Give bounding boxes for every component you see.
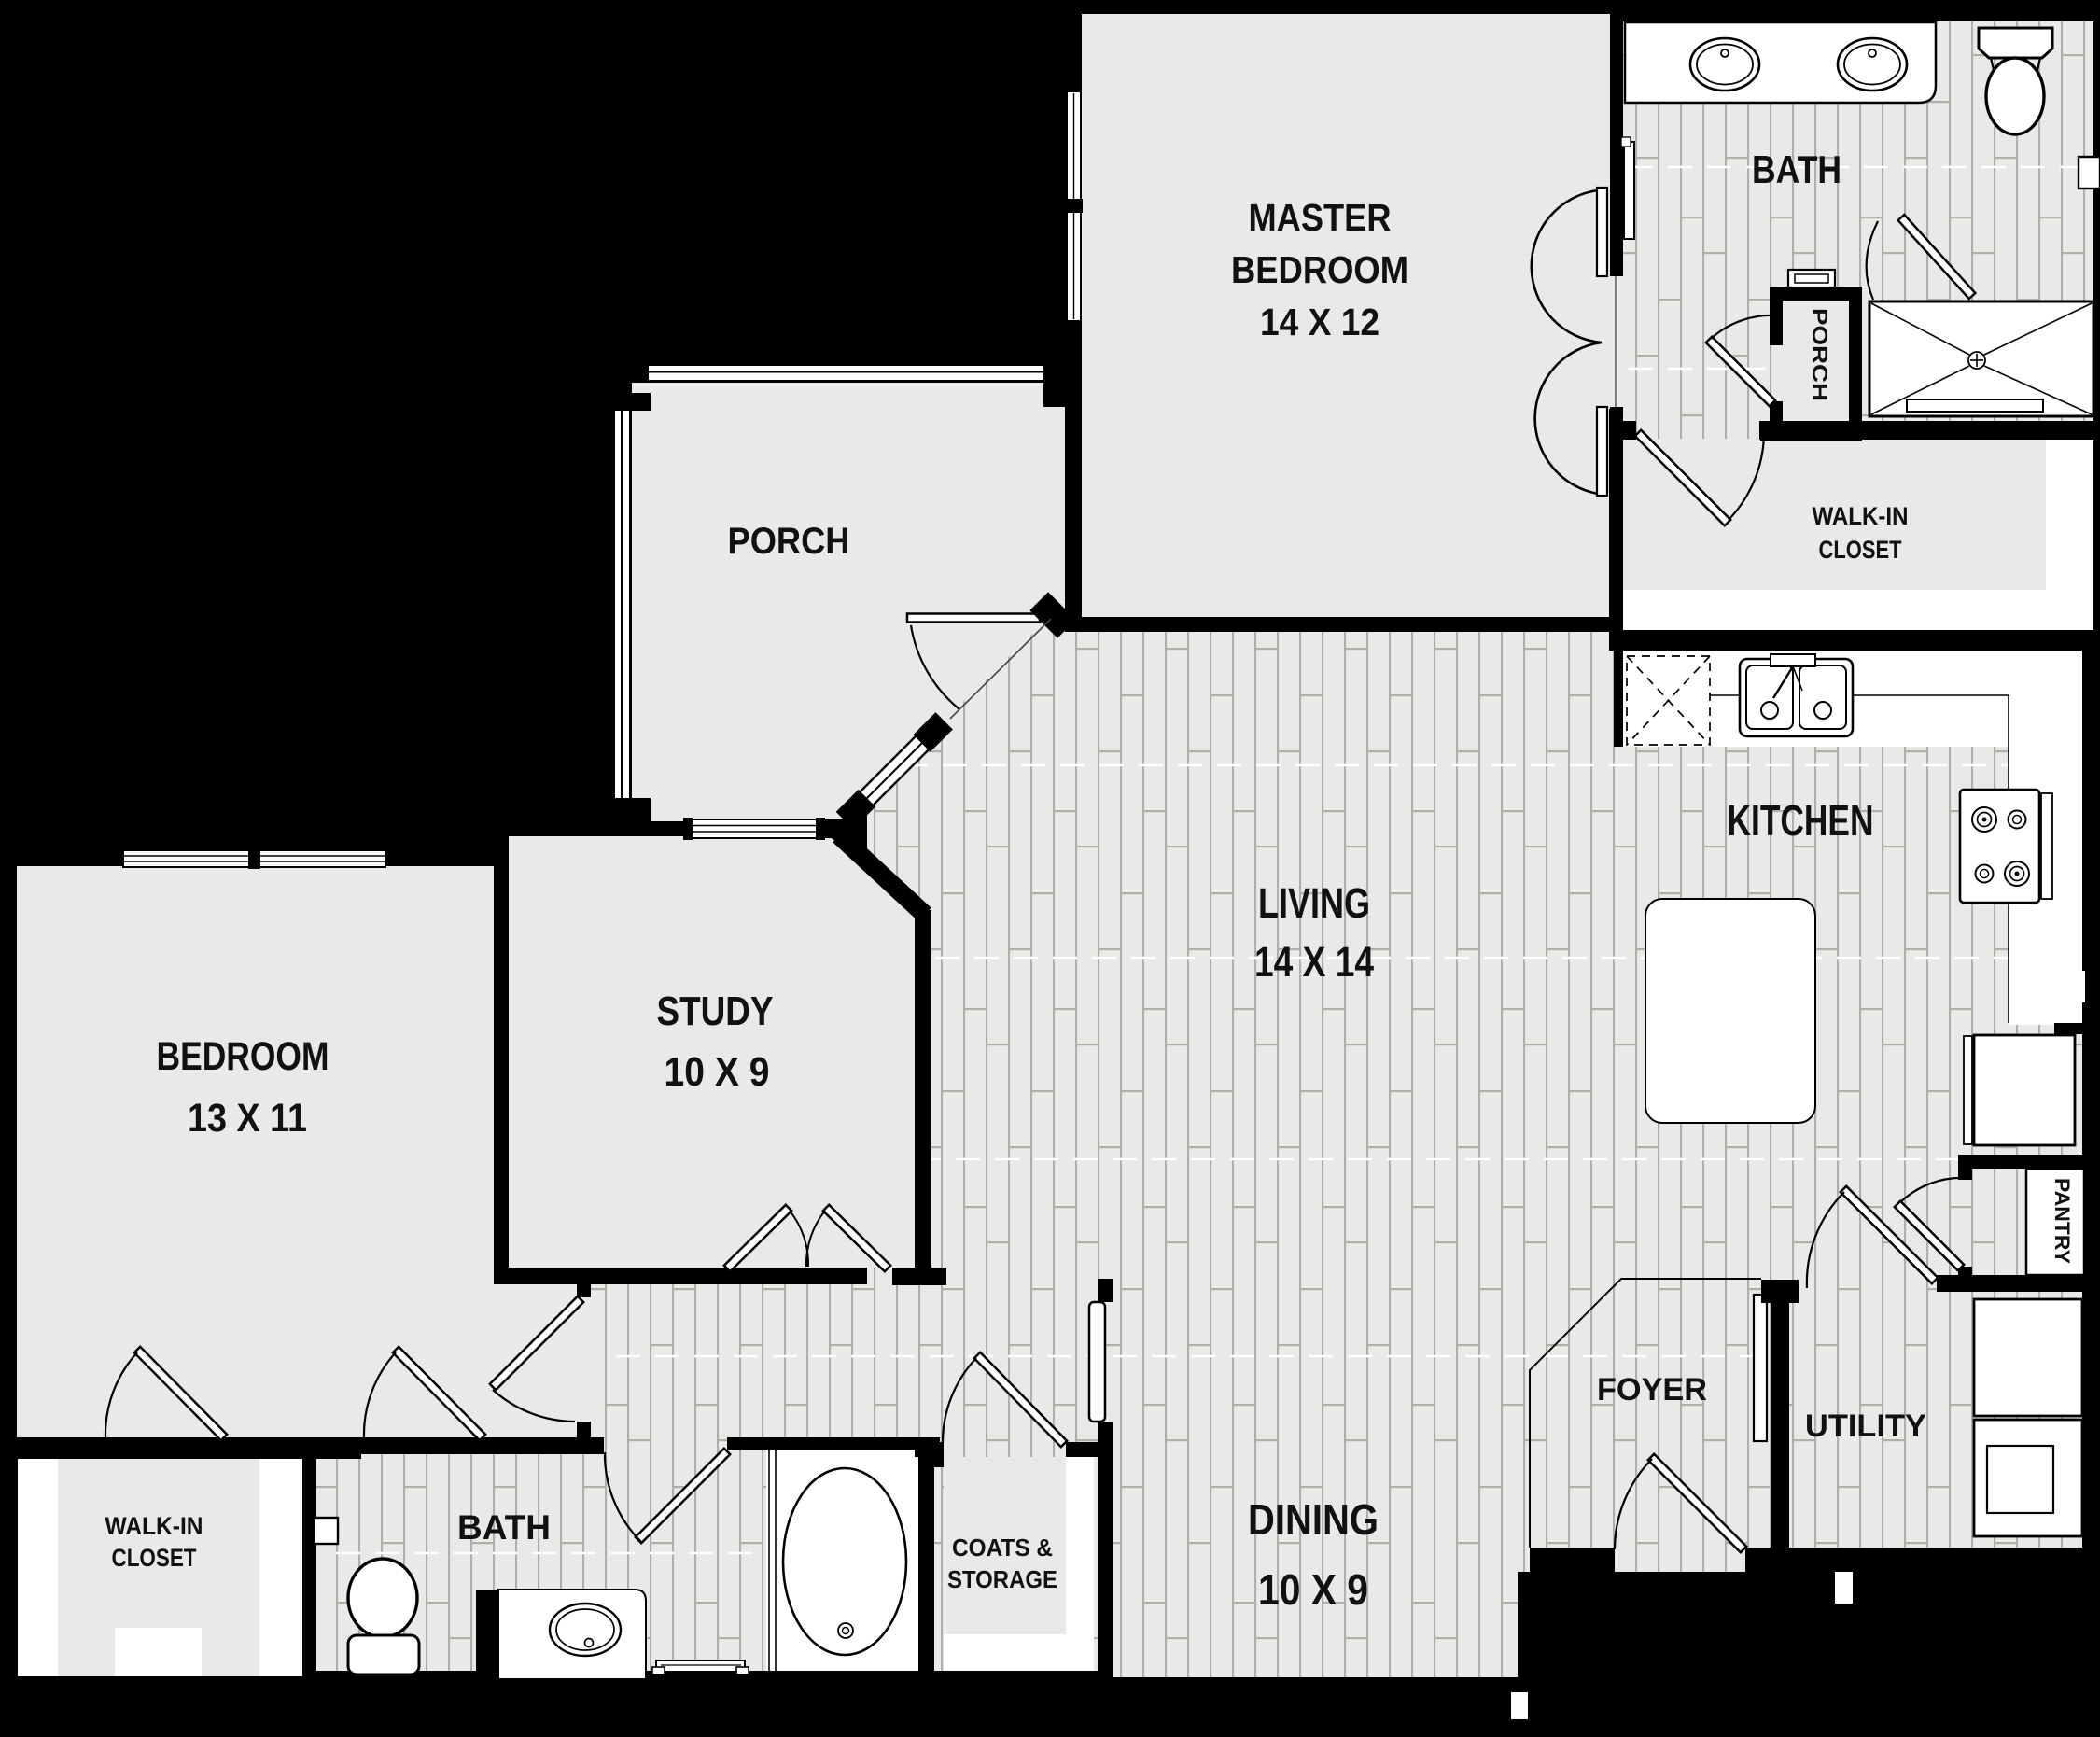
svg-text:WALK-IN: WALK-IN <box>1813 502 1909 530</box>
svg-text:14 X 12: 14 X 12 <box>1260 301 1379 343</box>
svg-text:CLOSET: CLOSET <box>1819 536 1902 564</box>
svg-text:13 X 11: 13 X 11 <box>188 1096 307 1141</box>
svg-text:BEDROOM: BEDROOM <box>1231 248 1408 291</box>
svg-text:10 X 9: 10 X 9 <box>1258 1565 1368 1614</box>
svg-text:KITCHEN: KITCHEN <box>1728 796 1874 845</box>
svg-text:STUDY: STUDY <box>657 988 774 1034</box>
svg-text:BEDROOM: BEDROOM <box>157 1034 329 1079</box>
svg-text:PORCH: PORCH <box>1808 308 1832 401</box>
svg-text:COATS &: COATS & <box>952 1534 1053 1562</box>
svg-text:PANTRY: PANTRY <box>2051 1178 2074 1264</box>
svg-text:DINING: DINING <box>1248 1495 1379 1544</box>
svg-text:BATH: BATH <box>457 1508 551 1547</box>
svg-text:BATH: BATH <box>1752 147 1841 191</box>
svg-text:CLOSET: CLOSET <box>112 1544 197 1572</box>
svg-text:FOYER: FOYER <box>1597 1372 1707 1408</box>
svg-text:14 X 14: 14 X 14 <box>1254 938 1374 986</box>
svg-text:UTILITY: UTILITY <box>1805 1408 1926 1444</box>
svg-text:PORCH: PORCH <box>728 521 850 562</box>
svg-text:WALK-IN: WALK-IN <box>105 1512 203 1540</box>
svg-text:10 X 9: 10 X 9 <box>665 1049 770 1095</box>
svg-text:LIVING: LIVING <box>1258 879 1370 927</box>
svg-text:MASTER: MASTER <box>1249 196 1392 239</box>
svg-text:STORAGE: STORAGE <box>947 1565 1057 1593</box>
